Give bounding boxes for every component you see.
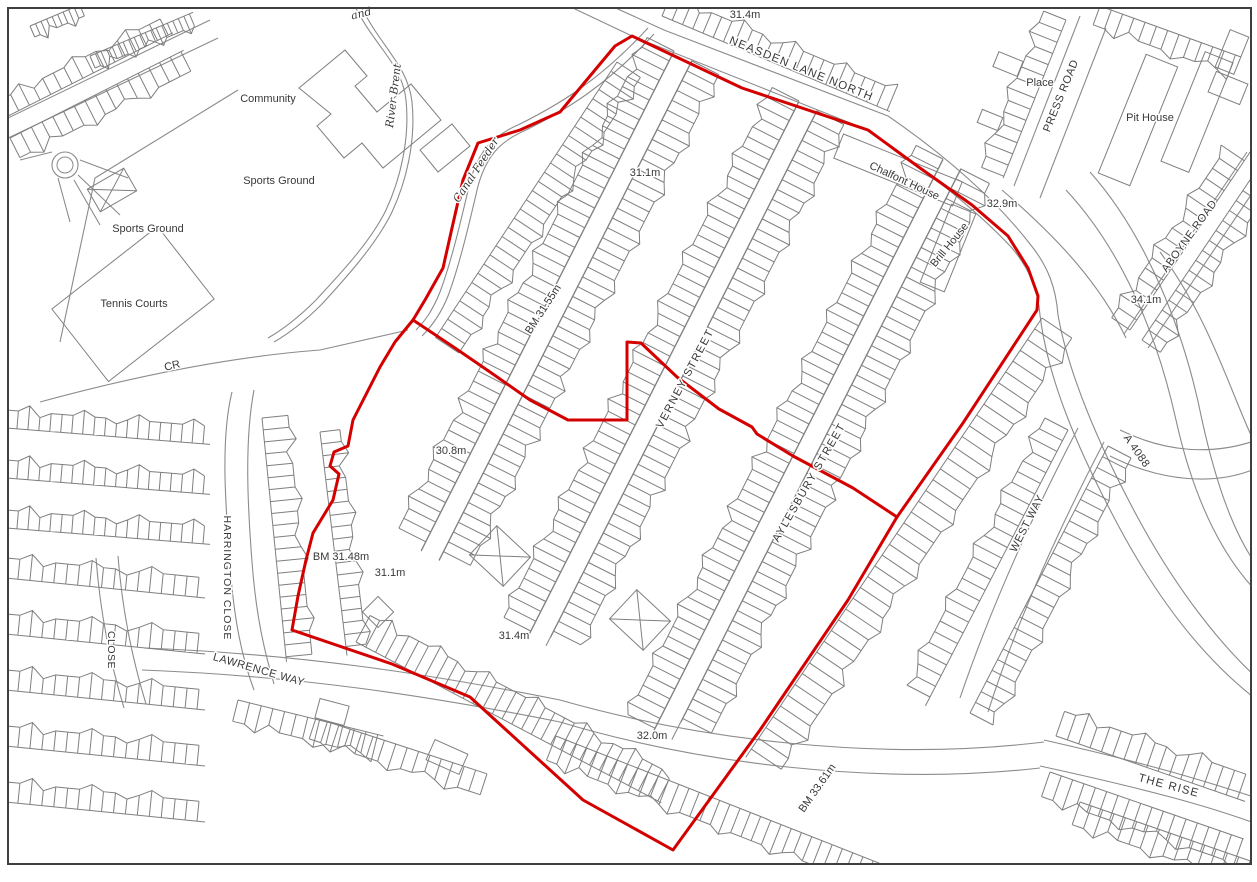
spot-height-30-8m: 30.8m [436,445,467,457]
map-labels: NEASDEN LANE NORTHPRESS ROADABOYNE ROADV… [100,5,1219,815]
site-boundary-divider [413,320,897,517]
benchmark-bm-31-55m: BM 31.55m [523,283,564,337]
street-label-aboyne-road: ABOYNE ROAD [1159,198,1219,275]
place-label-community: Community [240,93,296,105]
place-label-place: Place [1026,77,1054,89]
spot-height-32-9m: 32.9m [987,198,1018,210]
place-label-sports-ground: Sports Ground [243,175,315,187]
spot-height-31-4m: 31.4m [730,9,761,21]
spot-height-31-4m: 31.4m [499,630,530,642]
spot-height-32-0m: 32.0m [637,730,668,742]
street-label-harrington-close: HARRINGTON CLOSE [221,516,233,641]
spot-height-31-1m: 31.1m [630,167,661,179]
benchmark-bm-31-48m: BM 31.48m [313,551,369,563]
street-label-verney-street: VERNEY STREET [654,327,717,431]
street-label-close: CLOSE [105,631,117,669]
place-label-pit-house: Pit House [1126,112,1174,124]
building-outlines [0,0,1257,882]
spot-height-34-1m: 34.1m [1131,294,1162,306]
street-label-lawrence-way: LAWRENCE WAY [212,651,307,689]
place-label-sports-ground: Sports Ground [112,223,184,235]
place-label-tennis-courts: Tennis Courts [100,298,168,310]
place-label-river-brent: River Brent [383,62,404,129]
map-linework [0,0,1257,882]
street-label-the-rise: THE RISE [1137,772,1201,800]
place-label-chalfont-house: Chalfont House [867,160,941,203]
street-label-press-road: PRESS ROAD [1041,58,1081,134]
place-label-cr: CR [163,358,181,374]
street-label-a-4088: A 4088 [1121,433,1152,470]
street-label-neasden-lane-north: NEASDEN LANE NORTH [727,35,875,104]
spot-height-31-1m: 31.1m [375,567,406,579]
map-document: NEASDEN LANE NORTHPRESS ROADABOYNE ROADV… [0,0,1257,882]
street-label-aylesbury-street: AYLESBURY STREET [770,421,848,544]
map-canvas: NEASDEN LANE NORTHPRESS ROADABOYNE ROADV… [0,0,1257,882]
